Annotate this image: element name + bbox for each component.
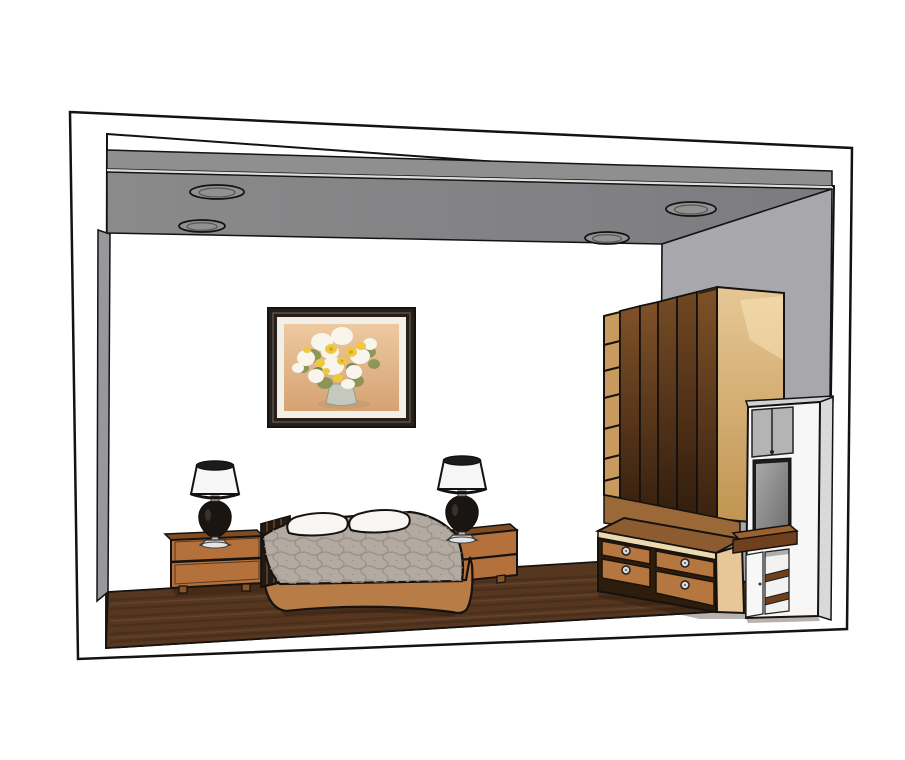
flower-center xyxy=(341,360,344,363)
ceiling-downlight xyxy=(666,202,716,216)
nightstand-foot xyxy=(242,584,250,591)
lower-door-knob xyxy=(759,583,762,586)
white-flower xyxy=(292,363,304,373)
white-flower xyxy=(346,365,362,379)
wardrobe-door xyxy=(620,306,640,503)
knob-center xyxy=(625,569,627,571)
bed xyxy=(261,510,472,617)
bedroom-3d-render xyxy=(0,0,905,760)
ceiling-downlight xyxy=(179,220,225,232)
tv-cabinet-unit xyxy=(733,396,833,623)
white-flower xyxy=(331,327,353,345)
yellow-flower xyxy=(356,342,366,350)
pillow-right xyxy=(349,510,410,532)
wardrobe-shelf-column xyxy=(604,312,620,498)
wardrobe-door xyxy=(697,287,717,519)
cabinet-knob xyxy=(770,450,774,454)
yellow-flower xyxy=(322,368,330,374)
knob-center xyxy=(625,550,627,552)
wardrobe-door-shading xyxy=(658,297,677,510)
wall-painting xyxy=(268,308,415,427)
render-canvas xyxy=(0,0,905,760)
yellow-flower xyxy=(333,374,343,382)
dresser-side-panel xyxy=(716,545,744,613)
pillow-left xyxy=(287,513,348,535)
white-flower xyxy=(308,369,324,383)
white-flower xyxy=(341,379,355,389)
leaf xyxy=(368,359,380,369)
flower-center xyxy=(349,350,353,354)
wardrobe-door-shading xyxy=(677,292,697,515)
nightstand-foot xyxy=(497,575,505,583)
wardrobe-door xyxy=(640,302,658,506)
ceiling-downlight xyxy=(585,232,629,244)
flower-center xyxy=(329,347,333,351)
yellow-flower xyxy=(315,359,325,367)
left-wall xyxy=(97,230,110,601)
yellow-flower xyxy=(303,347,311,353)
knob-center xyxy=(684,584,686,586)
nightstand-foot xyxy=(179,586,187,593)
ceiling-downlight xyxy=(190,185,244,199)
knob-center xyxy=(684,562,686,564)
